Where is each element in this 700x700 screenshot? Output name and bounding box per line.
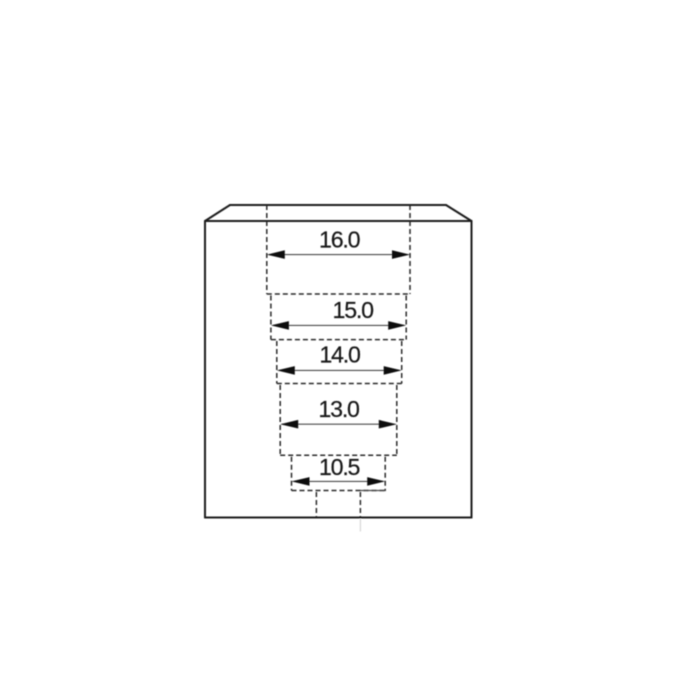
- svg-text:14.0: 14.0: [319, 342, 360, 368]
- svg-text:13.0: 13.0: [318, 396, 359, 422]
- svg-text:15.0: 15.0: [333, 297, 374, 323]
- svg-text:16.0: 16.0: [319, 227, 360, 253]
- svg-text:10.5: 10.5: [319, 454, 360, 480]
